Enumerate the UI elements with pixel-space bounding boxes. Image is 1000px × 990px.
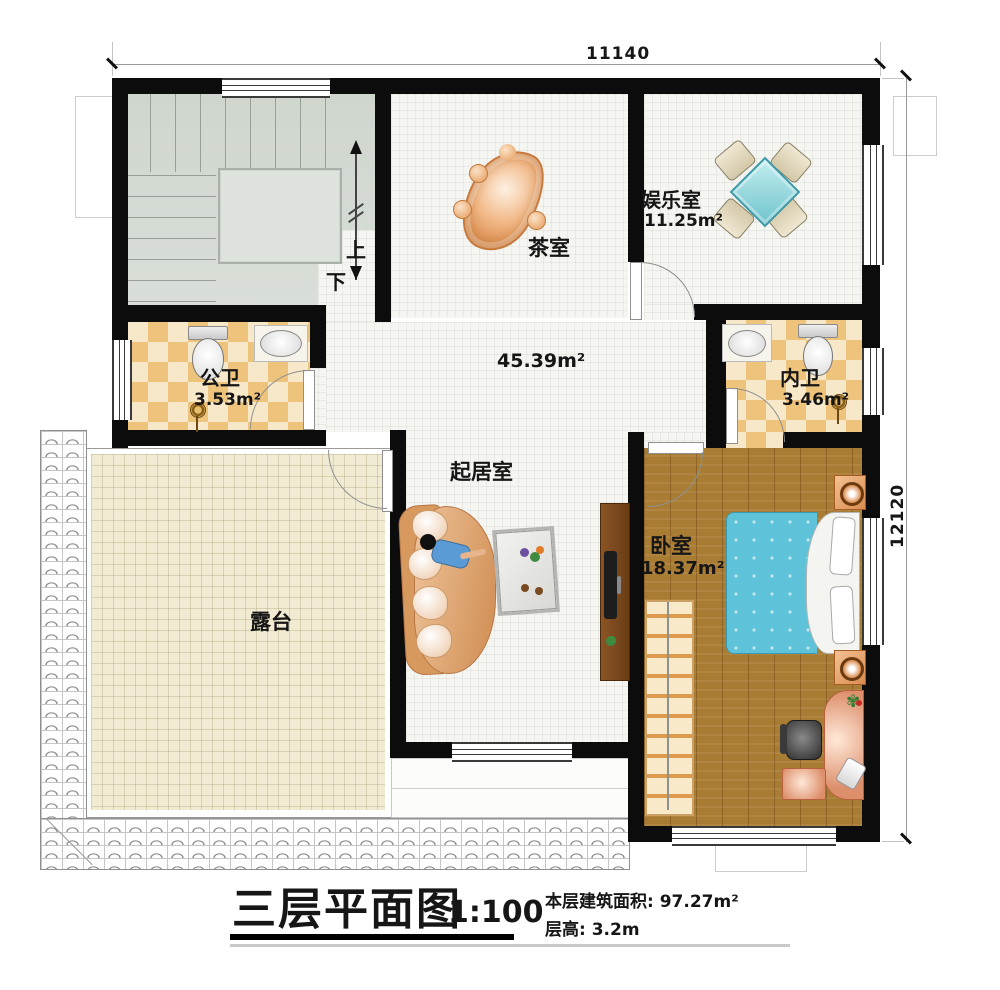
room-area-living: 45.39m² — [497, 352, 585, 371]
wall — [628, 94, 644, 262]
wall — [112, 305, 326, 322]
floor-height-text: 层高: 3.2m — [545, 922, 640, 939]
room-label-terrace: 露台 — [250, 612, 292, 633]
dimension-line-right — [906, 78, 907, 842]
wall — [694, 304, 880, 320]
plant-flower — [856, 700, 862, 706]
tea-stool — [453, 200, 472, 219]
room-label-entertainment: 娱乐室 — [641, 190, 701, 210]
window — [862, 348, 884, 415]
wall — [644, 78, 880, 94]
window — [862, 518, 884, 645]
dimension-extension — [882, 78, 904, 79]
wall — [310, 305, 326, 368]
dimension-line-top — [112, 64, 880, 65]
room-label-private-bath: 内卫 — [780, 368, 820, 388]
room-label-bedroom: 卧室 — [650, 536, 692, 557]
roof-outline — [893, 96, 937, 156]
wall — [783, 432, 880, 448]
dimension-label-top: 11140 — [586, 46, 650, 63]
stair-arrow-up-icon — [350, 140, 362, 154]
table-cup — [521, 584, 529, 592]
stair-passage — [326, 305, 375, 322]
floor-area-text: 本层建筑面积: 97.27m² — [545, 894, 739, 911]
wall — [112, 78, 128, 340]
wall — [628, 432, 644, 826]
room-label-public-bath: 公卫 — [200, 368, 240, 388]
flower-decor — [520, 548, 529, 557]
roof-tiles-bottom — [40, 818, 630, 870]
room-area-entertainment: 11.25m² — [644, 213, 723, 230]
wall — [112, 78, 222, 94]
stair-label-up: 上 — [346, 240, 366, 260]
room-area-bedroom: 18.37m² — [641, 560, 725, 578]
person-head — [420, 534, 436, 550]
tea-stool — [527, 211, 546, 230]
dimension-extension — [880, 42, 881, 76]
pillow — [829, 516, 856, 575]
floor-drain-stem — [196, 416, 198, 432]
nightstand-lamp-icon — [840, 657, 864, 681]
wall — [375, 94, 391, 322]
floor-drain-stem — [837, 408, 839, 424]
title-underline-thin — [230, 944, 790, 947]
sofa-cushion — [416, 624, 452, 658]
nightstand-lamp-icon — [840, 482, 864, 506]
tea-stool — [499, 144, 516, 161]
office-chair — [786, 720, 822, 760]
room-label-tea: 茶室 — [528, 238, 570, 259]
dimension-label-right: 12120 — [890, 484, 907, 548]
flower-decor — [536, 546, 544, 554]
window — [222, 78, 330, 98]
pillow — [829, 585, 855, 644]
dimension-extension — [882, 841, 904, 842]
roof-outline — [715, 842, 807, 872]
tv-stand — [617, 576, 621, 594]
wall — [112, 430, 326, 446]
wall — [330, 78, 644, 94]
coffee-table — [492, 526, 560, 616]
tv — [604, 551, 617, 619]
wall — [572, 742, 628, 758]
stair-landing — [218, 168, 342, 264]
window — [112, 340, 132, 420]
window — [672, 826, 836, 846]
roof-tiles-left — [40, 430, 87, 870]
wall — [390, 742, 452, 758]
stair-arrow-down-icon — [350, 266, 362, 280]
wall — [836, 826, 880, 842]
room-label-living: 起居室 — [450, 462, 513, 483]
stair-treads-left — [128, 172, 216, 302]
window — [862, 145, 884, 265]
office-chair-back — [780, 724, 787, 754]
bed — [726, 512, 818, 654]
stair-label-down: 下 — [326, 272, 346, 292]
room-area-private-bath: 3.46m² — [782, 392, 849, 409]
table-cup — [535, 587, 543, 595]
sink — [260, 330, 302, 357]
room-terrace-floor — [91, 454, 385, 810]
wall — [628, 826, 672, 842]
dimension-extension — [112, 42, 113, 76]
sofa-cushion — [412, 586, 448, 620]
eave-band — [391, 758, 630, 818]
hall-floor — [326, 322, 706, 432]
page-title: 三层平面图 — [232, 888, 462, 932]
sink — [728, 330, 766, 357]
wardrobe — [645, 600, 694, 816]
side-table — [782, 768, 826, 800]
stair-treads-top — [150, 94, 350, 172]
floor-plan: ✾ 茶室 娱乐室 11.25m² 公卫 3.53m² 内卫 3.46m² 45.… — [0, 0, 1000, 990]
scale-label: 1:100 — [448, 898, 544, 928]
wall — [862, 78, 880, 145]
tea-stool — [469, 164, 488, 183]
title-underline-thick — [230, 934, 514, 940]
room-area-public-bath: 3.53m² — [194, 392, 261, 409]
wardrobe-rod — [667, 602, 669, 810]
window — [452, 742, 572, 762]
